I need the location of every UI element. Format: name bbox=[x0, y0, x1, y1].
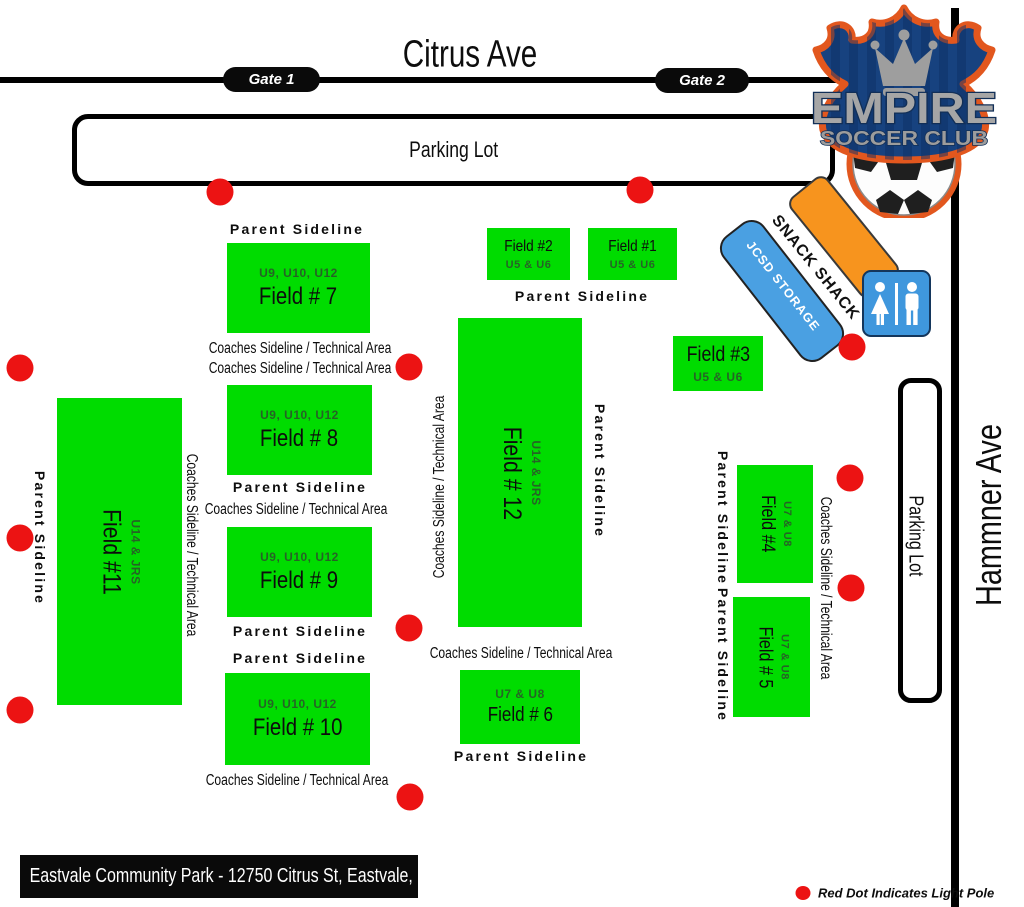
parent-sideline-label: Parent Sideline bbox=[454, 748, 588, 764]
field-ages: U14 & JRS bbox=[129, 519, 143, 584]
gate-2-label: Gate 2 bbox=[679, 72, 725, 89]
field-name: Field #2 bbox=[504, 238, 552, 256]
parent-sideline-label: Parent Sideline bbox=[32, 471, 48, 605]
field-name: Field #4 bbox=[757, 495, 779, 552]
light-pole-dot bbox=[627, 177, 654, 204]
field-ages: U9, U10, U12 bbox=[258, 697, 337, 711]
field-ages: U5 & U6 bbox=[506, 259, 552, 271]
field-9: U9, U10, U12 Field # 9 bbox=[227, 527, 372, 617]
field-1: Field #1 U5 & U6 bbox=[588, 228, 677, 280]
restroom-sign bbox=[862, 270, 931, 337]
parking-lot-top: Parking Lot bbox=[72, 114, 835, 186]
field-name: Field # 9 bbox=[260, 567, 338, 595]
light-pole-dot bbox=[839, 334, 866, 361]
citrus-ave-label: Citrus Ave bbox=[403, 34, 538, 77]
coaches-sideline-label: Coaches Sideline / Technical Area bbox=[182, 454, 200, 637]
parent-sideline-label: Parent Sideline bbox=[715, 451, 731, 585]
restroom-man-icon bbox=[906, 282, 919, 325]
restroom-divider bbox=[895, 283, 898, 325]
field-10: U9, U10, U12 Field # 10 bbox=[225, 673, 370, 765]
coaches-sideline-label: Coaches Sideline / Technical Area bbox=[816, 497, 834, 680]
field-name: Field # 12 bbox=[497, 426, 526, 519]
gate-1-label: Gate 1 bbox=[249, 71, 295, 88]
field-7: U9, U10, U12 Field # 7 bbox=[227, 243, 370, 333]
field-2: Field #2 U5 & U6 bbox=[487, 228, 570, 280]
light-pole-dot bbox=[397, 784, 424, 811]
field-name: Field # 7 bbox=[259, 283, 337, 311]
light-pole-dot bbox=[7, 697, 34, 724]
legend-text: Red Dot Indicates Light Pole bbox=[818, 886, 994, 901]
parking-lot-top-label: Parking Lot bbox=[409, 137, 498, 163]
light-pole-dot bbox=[838, 575, 865, 602]
field-name: Field #1 bbox=[608, 238, 656, 256]
field-name: Field #3 bbox=[686, 343, 750, 367]
coaches-sideline-label: Coaches Sideline / Technical Area bbox=[209, 360, 392, 378]
field-ages: U5 & U6 bbox=[693, 370, 743, 384]
field-name: Field #11 bbox=[97, 509, 126, 595]
field-6: U7 & U8 Field # 6 bbox=[460, 670, 580, 744]
field-11: U14 & JRS Field #11 bbox=[57, 398, 182, 705]
restroom-woman-icon bbox=[871, 282, 889, 325]
park-map: Citrus Ave Hammner Ave Gate 1 Gate 2 Par… bbox=[0, 0, 1024, 907]
coaches-sideline-label: Coaches Sideline / Technical Area bbox=[206, 772, 389, 790]
logo-title: EMPIRE bbox=[811, 84, 997, 133]
address-text: Eastvale Community Park - 12750 Citrus S… bbox=[20, 865, 488, 888]
light-pole-dot bbox=[396, 615, 423, 642]
parent-sideline-label: Parent Sideline bbox=[515, 288, 649, 304]
light-pole-dot bbox=[207, 179, 234, 206]
parking-lot-right-label: Parking Lot bbox=[904, 496, 927, 577]
light-pole-dot bbox=[7, 525, 34, 552]
light-pole-dot bbox=[396, 354, 423, 381]
field-12: U14 & JRS Field # 12 bbox=[458, 318, 582, 627]
field-ages: U7 & U8 bbox=[778, 634, 790, 680]
coaches-sideline-label: Coaches Sideline / Technical Area bbox=[431, 396, 449, 579]
coaches-sideline-label: Coaches Sideline / Technical Area bbox=[430, 645, 613, 663]
address-bar: Eastvale Community Park - 12750 Citrus S… bbox=[20, 855, 418, 898]
logo-subtitle: SOCCER CLUB bbox=[820, 128, 988, 150]
parent-sideline-label: Parent Sideline bbox=[233, 650, 367, 666]
field-ages: U9, U10, U12 bbox=[259, 266, 338, 280]
coaches-sideline-label: Coaches Sideline / Technical Area bbox=[205, 501, 388, 519]
parent-sideline-label: Parent Sideline bbox=[233, 623, 367, 639]
legend-light-pole-dot bbox=[796, 886, 811, 900]
field-name: Field # 8 bbox=[260, 425, 338, 453]
field-ages: U14 & JRS bbox=[529, 440, 543, 505]
parent-sideline-label: Parent Sideline bbox=[715, 588, 731, 722]
field-5: U7 & U8 Field # 5 bbox=[733, 597, 810, 717]
field-3: Field #3 U5 & U6 bbox=[673, 336, 763, 391]
field-name: Field # 5 bbox=[753, 626, 775, 688]
field-ages: U7 & U8 bbox=[495, 687, 545, 701]
gate-2-pill: Gate 2 bbox=[655, 68, 749, 93]
field-4: U7 & U8 Field #4 bbox=[737, 465, 813, 583]
light-pole-dot bbox=[837, 465, 864, 492]
parent-sideline-label: Parent Sideline bbox=[230, 221, 364, 237]
light-pole-dot bbox=[7, 355, 34, 382]
field-name: Field # 6 bbox=[487, 704, 552, 727]
restroom-icons bbox=[866, 274, 927, 333]
field-name: Field # 10 bbox=[253, 714, 343, 742]
field-8: U9, U10, U12 Field # 8 bbox=[227, 385, 372, 475]
club-logo: EMPIRE SOCCER CLUB bbox=[791, 2, 1017, 218]
field-ages: U9, U10, U12 bbox=[260, 550, 339, 564]
parent-sideline-label: Parent Sideline bbox=[233, 479, 367, 495]
coaches-sideline-label: Coaches Sideline / Technical Area bbox=[209, 340, 392, 358]
field-ages: U5 & U6 bbox=[610, 259, 656, 271]
field-ages: U9, U10, U12 bbox=[260, 408, 339, 422]
hammner-ave-label: Hammner Ave bbox=[968, 424, 1010, 606]
parent-sideline-label: Parent Sideline bbox=[592, 404, 608, 538]
field-ages: U7 & U8 bbox=[782, 501, 794, 547]
gate-1-pill: Gate 1 bbox=[223, 67, 320, 92]
